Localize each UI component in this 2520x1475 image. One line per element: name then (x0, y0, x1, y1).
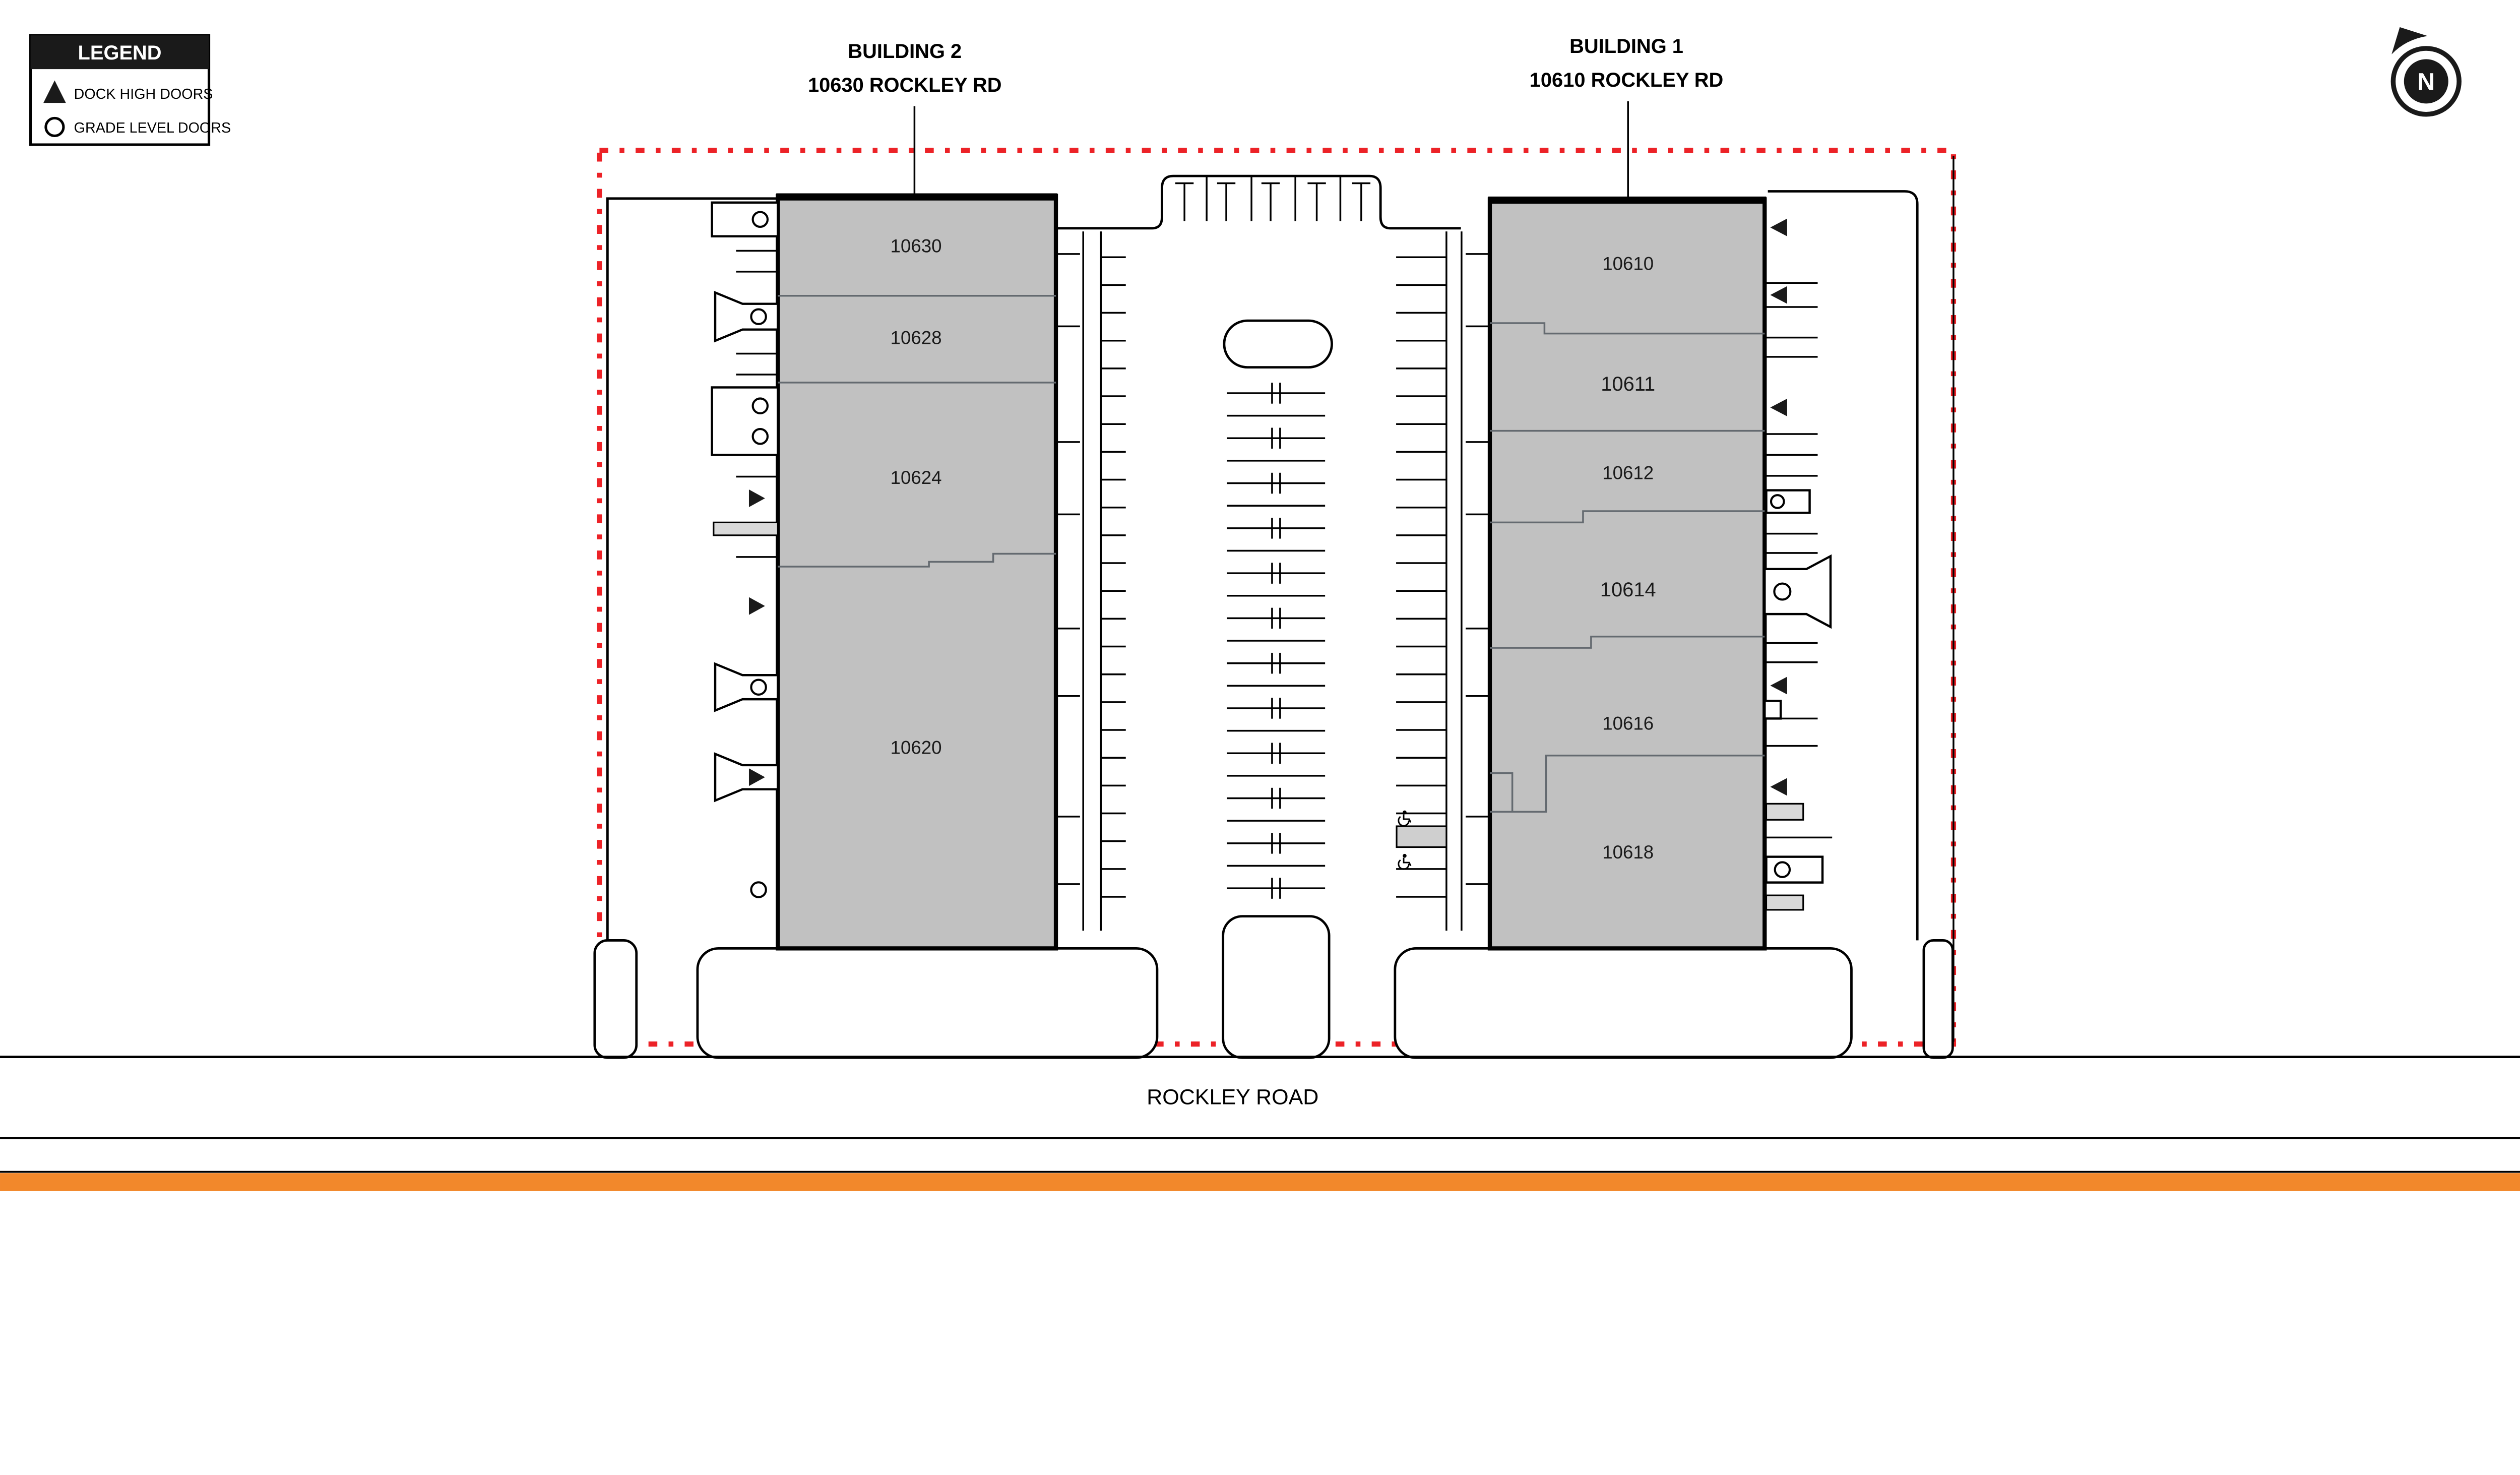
site-plan-drawing: 10630 10628 10624 10620 (0, 0, 2520, 1191)
dock-high-door-icon (749, 597, 765, 615)
building2-dock-apron-lines (1057, 254, 1080, 884)
accent-bar (0, 1173, 2520, 1191)
dock-high-door-icon (1770, 399, 1787, 416)
landscape-island-center (1223, 916, 1329, 1058)
unit-label: 10611 (1601, 373, 1655, 395)
parking-island-west-strip (595, 940, 637, 1058)
middle-lot-top-edge (1057, 176, 1461, 228)
unit-label: 10624 (891, 467, 942, 488)
parking-island-east-strip (1924, 940, 1952, 1058)
grade-level-door-icon (751, 882, 766, 897)
building1-dock-apron-lines (1466, 254, 1490, 884)
grade-door-box-icon (712, 387, 778, 455)
north-indicator: N (2391, 27, 2459, 114)
unit-label: 10610 (1602, 254, 1654, 274)
door-stoop-icon (1765, 701, 1781, 718)
legend: LEGEND DOCK HIGH DOORS GRADE LEVEL DOORS (31, 35, 231, 145)
handicap-access-aisle (1397, 826, 1446, 847)
building1-address: 10610 ROCKLEY RD (1530, 69, 1724, 91)
ramp-icon (714, 522, 778, 535)
unit-label: 10612 (1602, 462, 1654, 483)
landscape-island-oval (1224, 321, 1332, 367)
dock-high-door-icon (1770, 286, 1787, 304)
unit-label: 10620 (891, 737, 942, 758)
parking-stalls-center-double-row (1227, 383, 1325, 899)
building2-west-doors (712, 203, 778, 897)
east-lot-outline (1768, 191, 1918, 940)
truck-well-icon (715, 664, 778, 710)
handicap-icon (1399, 854, 1411, 869)
building2-header: BUILDING 2 10630 ROCKLEY RD (808, 40, 1002, 195)
building2-address: 10630 ROCKLEY RD (808, 74, 1002, 96)
building1-header: BUILDING 1 10610 ROCKLEY RD (1530, 35, 1724, 198)
legend-item-label: GRADE LEVEL DOORS (74, 120, 231, 136)
parking-stalls-west-column (1101, 257, 1125, 897)
truck-well-icon (715, 292, 778, 341)
ramp-icon (1766, 895, 1803, 910)
legend-item-label: DOCK HIGH DOORS (74, 86, 213, 102)
parking-island-south-east (1395, 948, 1852, 1058)
north-label: N (2417, 69, 2435, 96)
dock-high-door-icon (749, 489, 765, 507)
parking-stalls-east-column (1396, 257, 1446, 897)
dock-high-door-icon (1770, 778, 1787, 795)
entry-parking-stall-lines (1175, 177, 1370, 221)
grade-door-box-icon (1766, 490, 1809, 513)
unit-label: 10628 (891, 327, 942, 348)
unit-label: 10616 (1602, 713, 1654, 734)
ramp-icon (1766, 804, 1803, 820)
building1-east-doors (1765, 219, 1832, 910)
building1-block (1490, 199, 1765, 948)
building1-title: BUILDING 1 (1569, 35, 1683, 57)
building2-title: BUILDING 2 (848, 40, 962, 63)
unit-label: 10614 (1600, 579, 1656, 601)
dock-high-door-icon (1770, 677, 1787, 694)
building2-block (778, 196, 1056, 948)
truck-well-icon (715, 754, 778, 801)
road-label: ROCKLEY ROAD (1147, 1085, 1318, 1110)
parking-island-south-west (698, 948, 1157, 1058)
building2-footprint: 10630 10628 10624 10620 (776, 196, 1057, 948)
dock-high-door-icon (1770, 219, 1787, 236)
unit-label: 10630 (891, 236, 942, 257)
legend-title: LEGEND (78, 42, 162, 64)
building1-footprint: 10610 10611 10612 10614 10616 10618 (1488, 199, 1767, 948)
site-plan-page: 10630 10628 10624 10620 (0, 0, 2520, 1191)
unit-label: 10618 (1602, 842, 1654, 863)
